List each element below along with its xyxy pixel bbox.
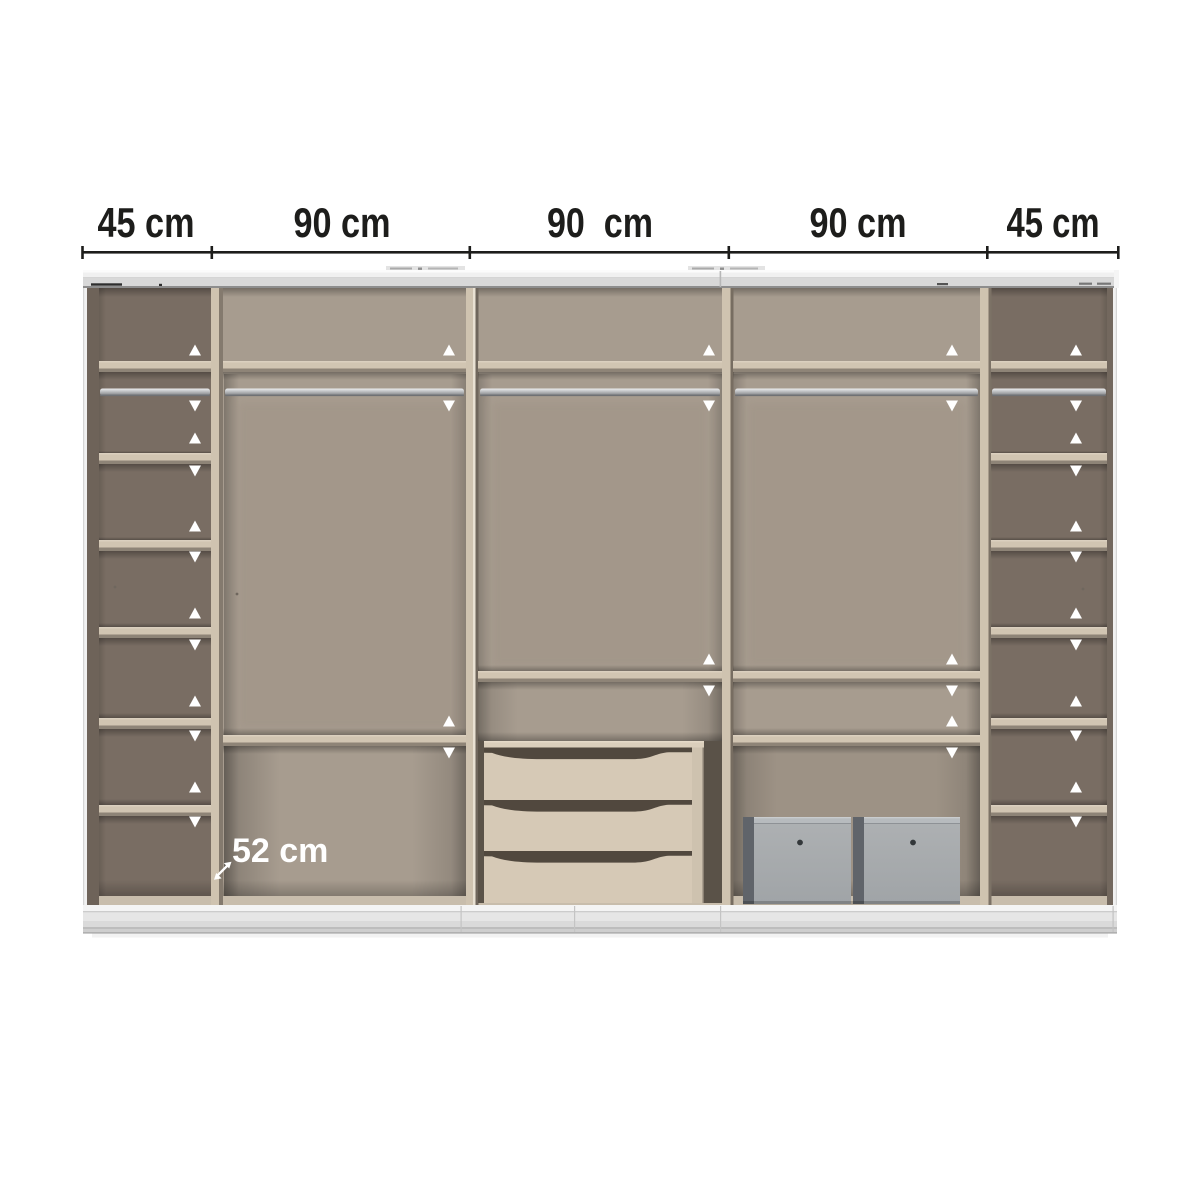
svg-text:90 cm: 90 cm	[547, 199, 653, 246]
svg-text:90 cm: 90 cm	[810, 199, 907, 246]
svg-text:90 cm: 90 cm	[294, 199, 391, 246]
svg-text:45 cm: 45 cm	[1007, 199, 1100, 246]
svg-text:52 cm: 52 cm	[232, 832, 328, 870]
svg-text:45 cm: 45 cm	[98, 199, 195, 246]
